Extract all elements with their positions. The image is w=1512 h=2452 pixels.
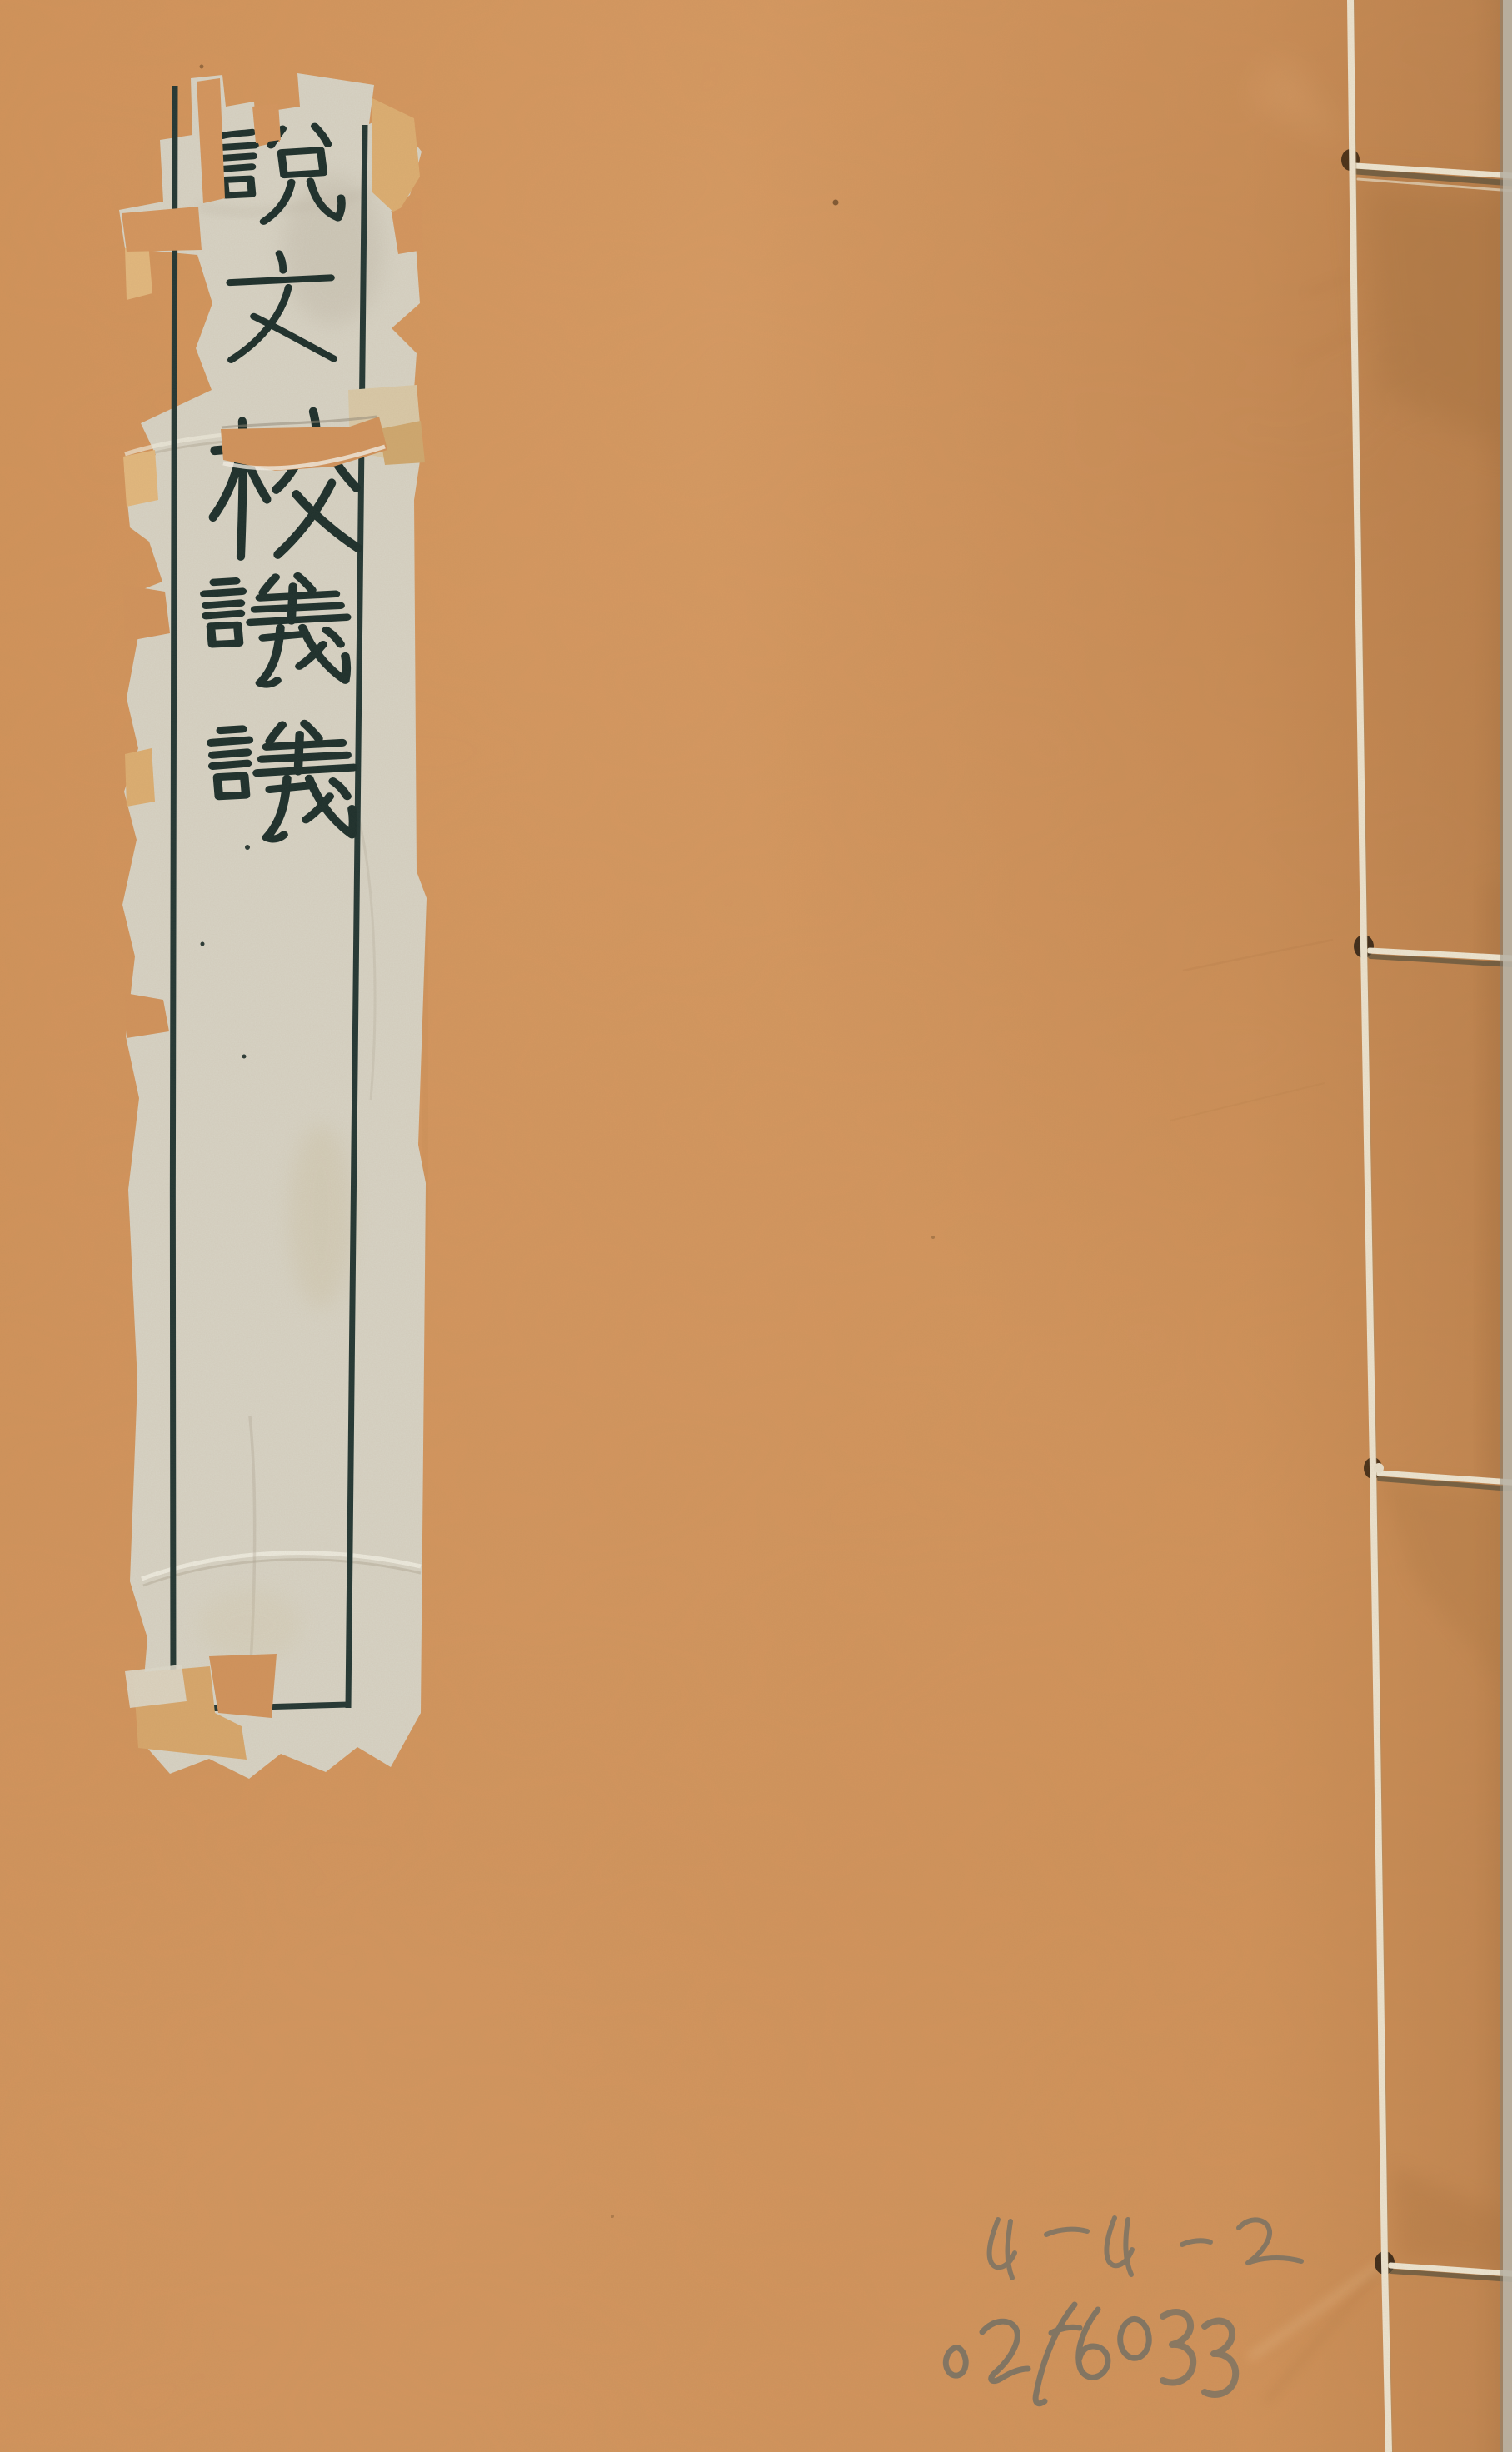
scan-edge — [1500, 0, 1512, 2452]
cover-artwork — [0, 0, 1512, 2452]
book-cover-scan: 說文校議議 4-4-2 0256033 — [0, 0, 1512, 2452]
scan-grain-overlay — [0, 0, 1512, 2452]
